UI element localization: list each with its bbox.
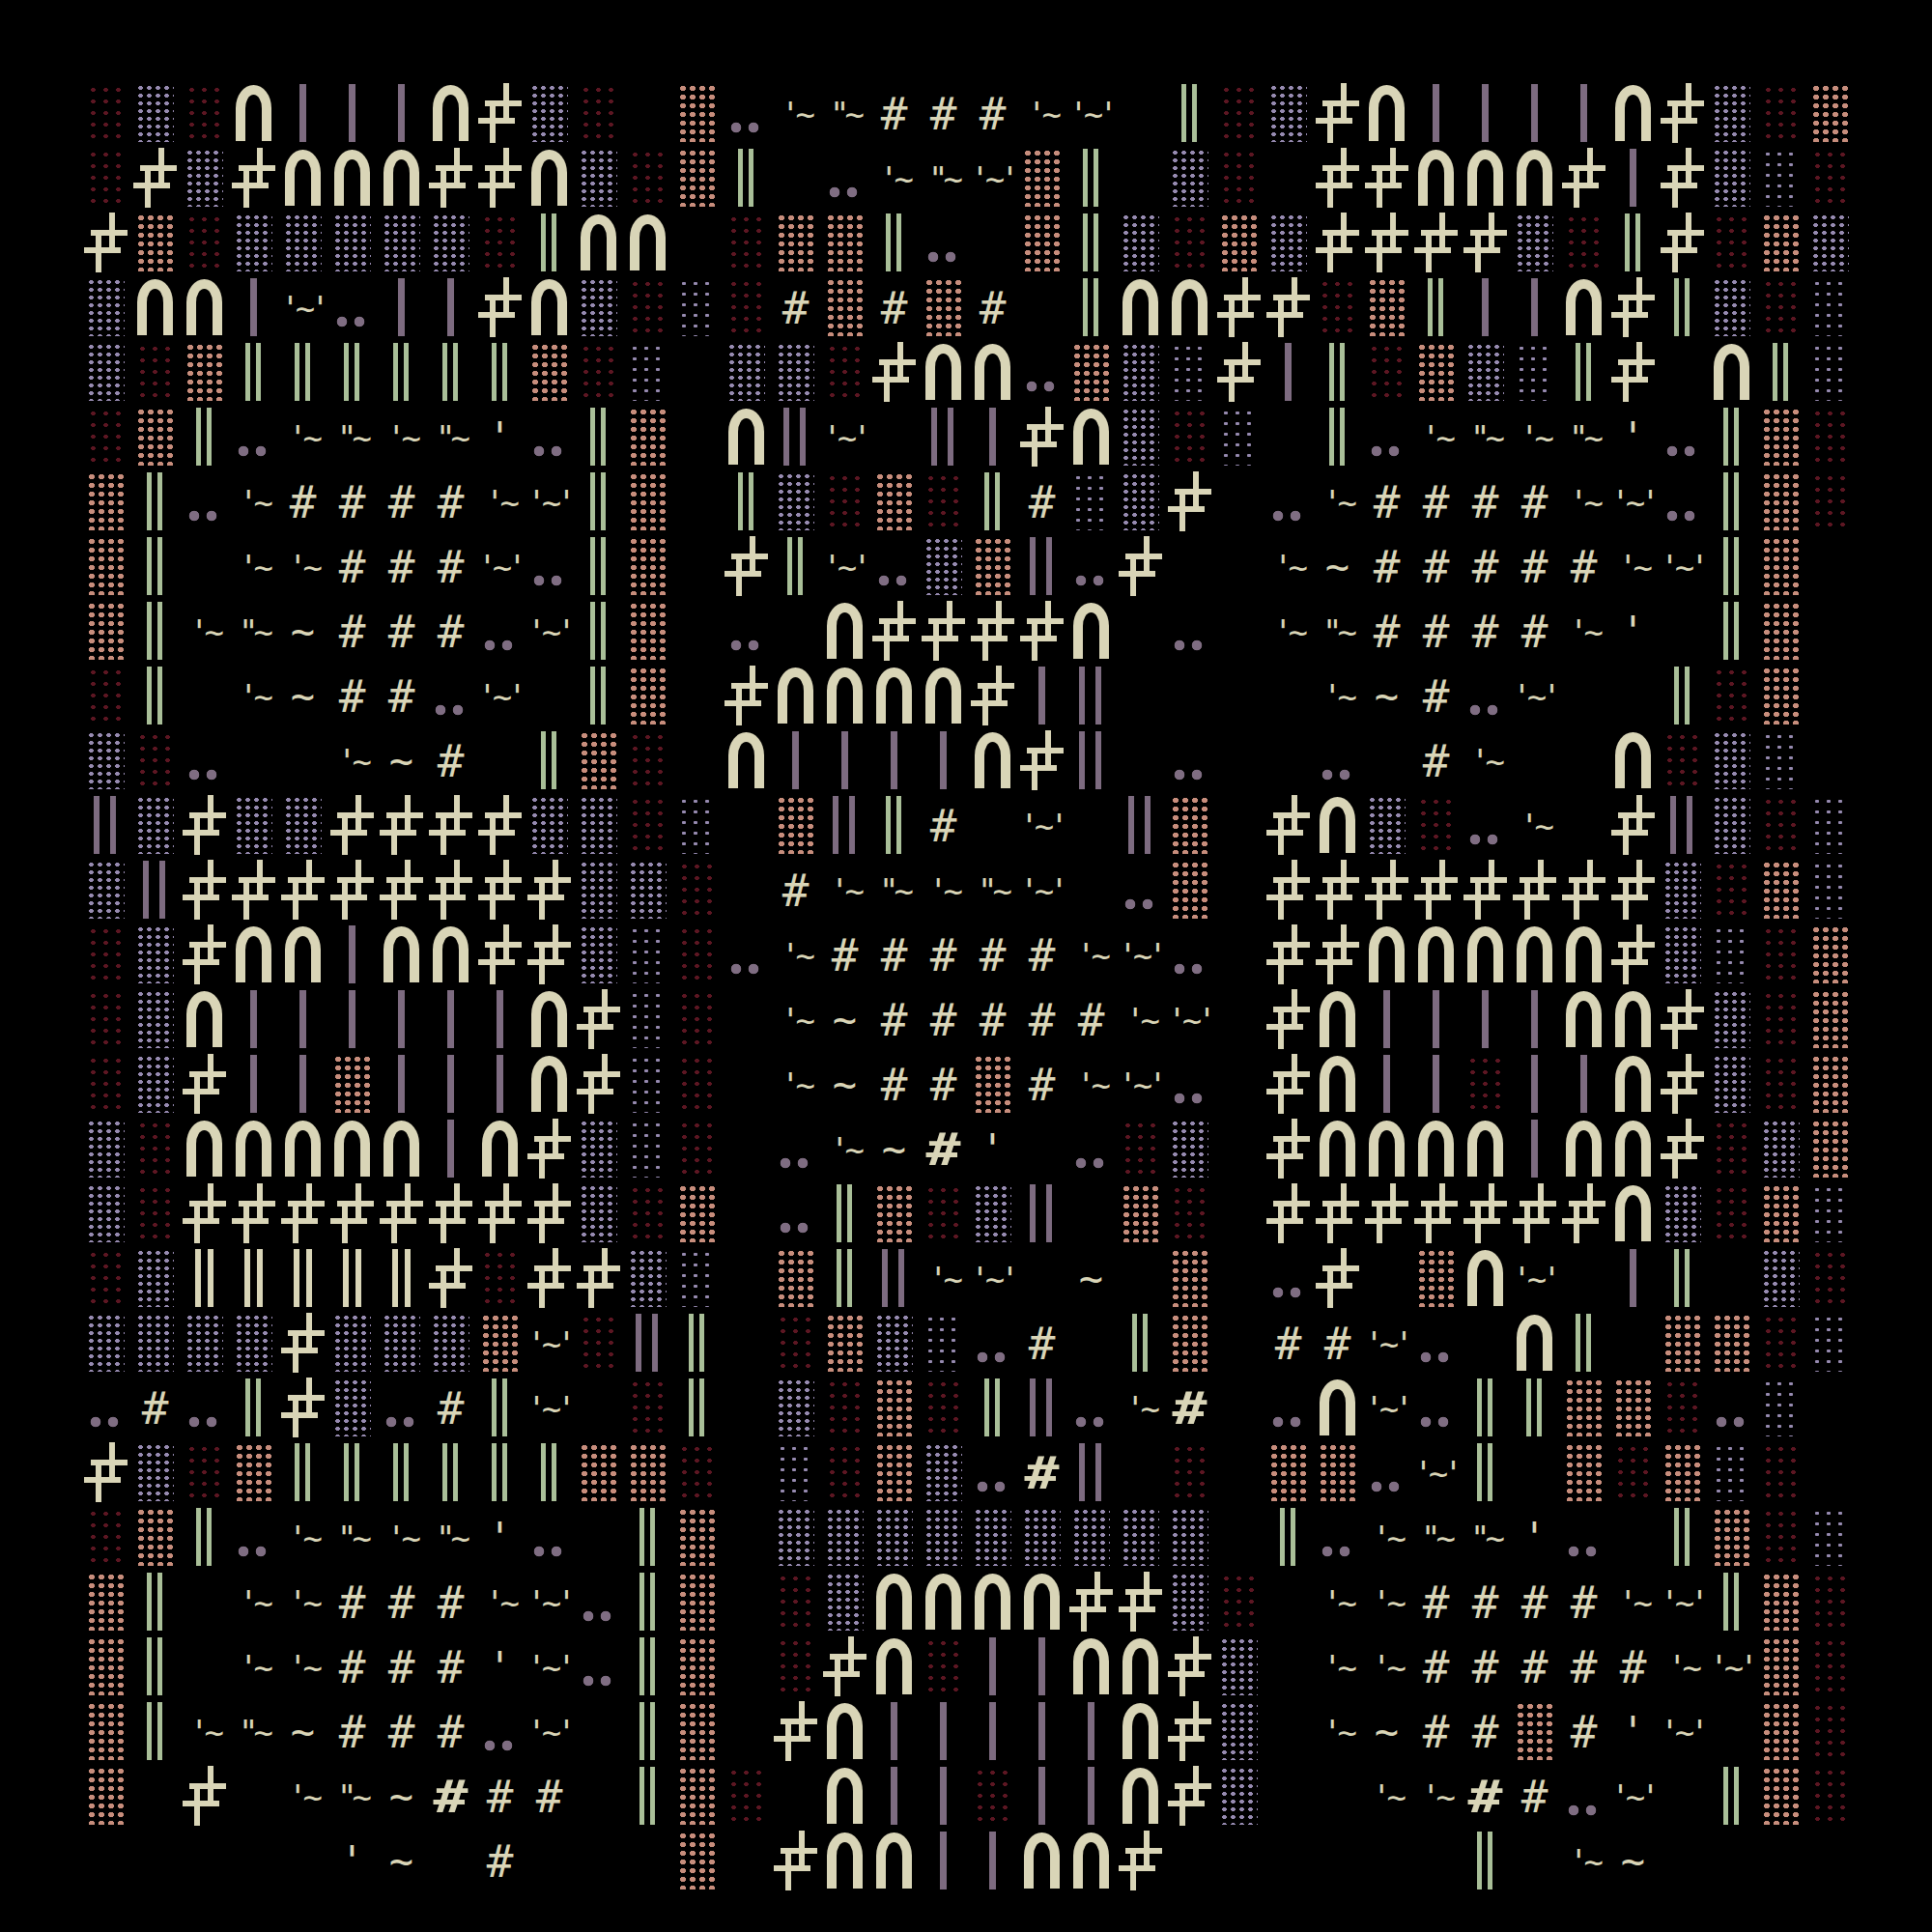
lavender-dot-block xyxy=(771,1505,820,1570)
arch-glyph xyxy=(377,146,426,211)
empty xyxy=(81,1829,130,1893)
lavender-sparse-dot-block xyxy=(1713,1443,1750,1501)
double-cross-glyph xyxy=(1559,858,1608,923)
green-bar-pair xyxy=(130,1570,180,1634)
tick-tilde-text: '~ xyxy=(475,469,525,534)
dot-pair xyxy=(1165,599,1214,664)
lavender-dot-block xyxy=(229,793,278,858)
double-cross-glyph xyxy=(81,211,130,275)
green-bar-pair xyxy=(426,340,475,405)
tick-tilde-text: '~ xyxy=(1510,793,1559,858)
mauve-bar xyxy=(968,1634,1017,1699)
maroon-dot-block xyxy=(1220,1573,1258,1631)
mauve-bar xyxy=(869,1699,919,1764)
green-bar-pair xyxy=(672,1311,722,1376)
salmon-dot-block xyxy=(629,408,667,466)
arch-glyph xyxy=(433,85,469,141)
maroon-dot-block xyxy=(919,1181,968,1246)
double-cross-glyph xyxy=(869,340,919,405)
double-cross-glyph xyxy=(1608,858,1658,923)
double-cross-glyph xyxy=(1264,793,1313,858)
arch-glyph xyxy=(1411,1117,1461,1181)
empty xyxy=(722,1117,771,1181)
maroon-dot-block xyxy=(924,1184,962,1242)
maroon-dot-block xyxy=(678,925,716,983)
arch-glyph xyxy=(525,987,574,1052)
hash-glyph: # xyxy=(1510,1570,1559,1634)
maroon-dot-block xyxy=(81,146,130,211)
green-bar-pair xyxy=(475,1440,525,1505)
salmon-dot-block xyxy=(1805,923,1855,987)
tick-tilde-tick-text: '~' xyxy=(968,146,1017,211)
tick-tilde-text: '~ xyxy=(869,146,919,211)
arch-glyph xyxy=(531,279,567,335)
tick-tilde-text: '~ xyxy=(771,987,820,1052)
green-bar-pair xyxy=(722,469,771,534)
mauve-bar xyxy=(1559,81,1608,146)
salmon-dot-block xyxy=(623,469,672,534)
tilde-text: ~ xyxy=(820,987,869,1052)
maroon-dot-block xyxy=(1614,1443,1652,1501)
arch-glyph xyxy=(482,1121,518,1177)
double-cross-glyph xyxy=(81,1440,130,1505)
double-cross-glyph xyxy=(475,275,525,340)
tick-tilde-text: '~ xyxy=(1264,599,1313,664)
tick-tilde-text: '~ xyxy=(327,728,377,793)
lavender-dot-block xyxy=(81,728,130,793)
empty xyxy=(1264,664,1313,728)
lavender-sparse-dot-block xyxy=(924,1314,962,1372)
hash-glyph: # xyxy=(327,469,377,534)
tick-tilde-tick-text: '~' xyxy=(1116,923,1165,987)
maroon-dot-block xyxy=(1707,664,1756,728)
green-bar-pair xyxy=(1313,405,1362,469)
lavender-sparse-dot-block xyxy=(1165,340,1214,405)
arch-glyph xyxy=(1172,279,1207,335)
hash-glyph: # xyxy=(968,987,1017,1052)
green-bar-pair xyxy=(426,1440,475,1505)
maroon-dot-block xyxy=(1214,81,1264,146)
double-cross-glyph xyxy=(1313,81,1362,146)
lavender-dot-block xyxy=(136,925,174,983)
tick-tilde-text: '~ xyxy=(1313,469,1362,534)
hash-glyph: # xyxy=(869,923,919,987)
lavender-sparse-dot-block xyxy=(1510,340,1559,405)
dot-pair xyxy=(722,923,771,987)
dot-pair xyxy=(869,534,919,599)
salmon-dot-block xyxy=(777,796,814,854)
lavender-dot-block xyxy=(1171,1573,1208,1631)
tick-tilde-tick-text: '~' xyxy=(525,1376,574,1440)
arch-glyph xyxy=(186,279,222,335)
tilde-text: ~ xyxy=(1362,1699,1411,1764)
hash-glyph: # xyxy=(869,275,919,340)
tick-tilde-tick-text: '~' xyxy=(1362,1376,1411,1440)
empty xyxy=(180,1634,229,1699)
lavender-dot-block xyxy=(1165,1505,1214,1570)
double-cross-glyph xyxy=(1165,1699,1214,1764)
mauve-bar-pair xyxy=(1017,1181,1066,1246)
empty xyxy=(1313,1829,1362,1893)
empty xyxy=(1264,405,1313,469)
maroon-dot-block xyxy=(678,990,716,1048)
lavender-sparse-dot-block xyxy=(1805,1311,1855,1376)
lavender-dot-block xyxy=(81,275,130,340)
maroon-dot-block xyxy=(180,1440,229,1505)
double-cross-glyph xyxy=(1313,211,1362,275)
dot-pair xyxy=(771,1181,820,1246)
cream-bar-pair xyxy=(278,1246,327,1311)
hash-glyph: # xyxy=(1066,987,1116,1052)
empty xyxy=(574,1829,623,1893)
arch-glyph xyxy=(876,1574,912,1630)
green-bar-pair xyxy=(1116,1311,1165,1376)
green-bar-pair xyxy=(426,1440,475,1505)
tick-tilde-text: '~ xyxy=(278,534,327,599)
double-cross-glyph xyxy=(180,1764,229,1829)
mauve-bar xyxy=(229,275,278,340)
cream-bar-pair xyxy=(327,1246,377,1311)
tick-text: ' xyxy=(475,405,525,469)
lavender-dot-block xyxy=(130,1311,180,1376)
salmon-dot-block xyxy=(672,1829,722,1893)
salmon-dot-block xyxy=(1658,1311,1707,1376)
arch-glyph xyxy=(820,599,869,664)
green-bar-pair xyxy=(1658,1246,1707,1311)
salmon-dot-block xyxy=(1756,534,1805,599)
lavender-dot-block xyxy=(278,211,327,275)
salmon-dot-block xyxy=(629,602,667,660)
maroon-dot-block xyxy=(1805,1634,1855,1699)
lavender-sparse-dot-block xyxy=(623,923,672,987)
empty xyxy=(722,1376,771,1440)
tick-tilde-tick-text: '~' xyxy=(1707,1634,1756,1699)
dot-pair xyxy=(180,728,229,793)
tick-tilde-tick-text: '~' xyxy=(525,599,574,664)
tick-text: ' xyxy=(1510,1505,1559,1570)
empty xyxy=(180,1829,229,1893)
double-cross-glyph xyxy=(820,1634,869,1699)
dot-pair xyxy=(1313,1505,1362,1570)
green-bar-pair xyxy=(968,469,1017,534)
tick-tilde-tick-text: '~' xyxy=(1017,858,1066,923)
green-bar-pair xyxy=(377,1440,426,1505)
tilde-text: ~ xyxy=(278,664,327,728)
maroon-dot-block xyxy=(1811,472,1849,530)
green-bar-pair xyxy=(327,340,377,405)
maroon-dot-block xyxy=(1707,1117,1756,1181)
dot-pair xyxy=(1264,1246,1313,1311)
lavender-dot-block xyxy=(1713,149,1750,207)
double-cross-glyph xyxy=(1658,211,1707,275)
arch-glyph xyxy=(1510,1311,1559,1376)
salmon-dot-block xyxy=(1756,664,1805,728)
quote-tilde-text: "~ xyxy=(327,1505,377,1570)
empty xyxy=(1707,1246,1756,1311)
hash-glyph: # xyxy=(377,599,426,664)
lavender-dot-block xyxy=(826,1508,864,1566)
double-cross-glyph xyxy=(1658,81,1707,146)
salmon-dot-block xyxy=(1756,469,1805,534)
quote-tilde-text: "~ xyxy=(229,1699,278,1764)
mauve-bar xyxy=(1461,81,1510,146)
maroon-dot-block xyxy=(180,211,229,275)
maroon-dot-block xyxy=(727,278,765,336)
empty xyxy=(1855,1181,1904,1246)
lavender-dot-block xyxy=(924,1443,962,1501)
salmon-dot-block xyxy=(1017,146,1066,211)
salmon-dot-block xyxy=(678,1702,716,1760)
tick-tilde-text: '~ xyxy=(919,858,968,923)
double-cross-glyph xyxy=(180,1181,229,1246)
double-cross-glyph xyxy=(377,858,426,923)
lavender-dot-block xyxy=(771,1376,820,1440)
dot-pair xyxy=(1461,793,1510,858)
empty xyxy=(229,1764,278,1829)
glyph-grid: '~"~###'~'~''~"~'~''~'###'~"~'~"~''~''~"… xyxy=(81,81,1904,1893)
green-bar-pair xyxy=(1658,664,1707,728)
salmon-dot-block xyxy=(968,534,1017,599)
double-cross-glyph xyxy=(1313,858,1362,923)
green-bar-pair xyxy=(1707,1764,1756,1829)
tick-tilde-text: '~ xyxy=(1264,599,1313,664)
hash-glyph: # xyxy=(327,1570,377,1634)
empty xyxy=(1165,1829,1214,1893)
dot-pair xyxy=(1313,728,1362,793)
double-cross-glyph xyxy=(426,1246,475,1311)
tick-tilde-text: '~ xyxy=(820,1117,869,1181)
hash-glyph: # xyxy=(1411,1570,1461,1634)
double-cross-glyph xyxy=(1313,1181,1362,1246)
hash-glyph: # xyxy=(1559,1699,1608,1764)
green-bar-pair xyxy=(1608,211,1658,275)
lavender-dot-block xyxy=(1762,1120,1800,1178)
mauve-bar-pair xyxy=(1017,1376,1066,1440)
arch-glyph xyxy=(925,1574,961,1630)
arch-glyph xyxy=(1116,1764,1165,1829)
arch-glyph xyxy=(1073,1833,1109,1889)
maroon-dot-block xyxy=(919,1376,968,1440)
tick-text: ' xyxy=(968,1117,1017,1181)
double-cross-glyph xyxy=(229,1181,278,1246)
lavender-sparse-dot-block xyxy=(1811,1508,1849,1566)
tick-tilde-text: '~ xyxy=(229,664,278,728)
salmon-dot-block xyxy=(87,1767,125,1825)
green-bar-pair xyxy=(574,599,623,664)
dot-pair xyxy=(574,1570,623,1634)
double-cross-glyph xyxy=(1264,275,1313,340)
hash-glyph: # xyxy=(1264,1311,1313,1376)
salmon-dot-block xyxy=(1411,1246,1461,1311)
salmon-dot-block xyxy=(130,1505,180,1570)
maroon-dot-block xyxy=(81,405,130,469)
salmon-dot-block xyxy=(672,1764,722,1829)
arch-glyph xyxy=(820,664,869,728)
salmon-dot-block xyxy=(1762,1767,1800,1825)
tick-tilde-tick-text: '~' xyxy=(475,664,525,728)
arch-glyph xyxy=(1615,1185,1651,1241)
double-cross-glyph xyxy=(1116,1829,1165,1893)
lavender-sparse-dot-block xyxy=(1805,1181,1855,1246)
lavender-dot-block xyxy=(87,861,125,919)
mauve-bar xyxy=(919,1699,968,1764)
lavender-dot-block xyxy=(1017,1505,1066,1570)
lavender-sparse-dot-block xyxy=(1805,1505,1855,1570)
tick-tilde-tick-text: '~' xyxy=(1510,1246,1559,1311)
green-bar-pair xyxy=(1707,1764,1756,1829)
double-cross-glyph xyxy=(1658,987,1707,1052)
dot-pair xyxy=(180,1376,229,1440)
empty xyxy=(1066,858,1116,923)
hash-glyph: # xyxy=(426,1699,475,1764)
maroon-dot-block xyxy=(81,1246,130,1311)
lavender-dot-block xyxy=(777,1508,814,1566)
lavender-dot-block xyxy=(229,1311,278,1376)
maroon-dot-block xyxy=(1805,1570,1855,1634)
empty xyxy=(1264,1634,1313,1699)
arch-glyph xyxy=(975,1574,1010,1630)
green-bar-pair xyxy=(229,1376,278,1440)
lavender-dot-block xyxy=(1707,728,1756,793)
mauve-bar xyxy=(1066,1764,1116,1829)
hash-glyph: # xyxy=(475,1764,525,1829)
double-cross-glyph xyxy=(327,1181,377,1246)
dot-pair xyxy=(722,599,771,664)
green-bar-pair xyxy=(1658,1505,1707,1570)
maroon-dot-block xyxy=(1762,796,1800,854)
maroon-dot-block xyxy=(1220,149,1258,207)
lavender-dot-block xyxy=(1663,1184,1701,1242)
tick-tilde-text: '~ xyxy=(1411,405,1461,469)
lavender-sparse-dot-block xyxy=(1811,1184,1849,1242)
salmon-dot-block xyxy=(678,1767,716,1825)
dot-pair xyxy=(968,1311,1017,1376)
double-cross-glyph xyxy=(475,81,525,146)
tick-tilde-text: '~ xyxy=(327,728,377,793)
dot-pair xyxy=(1066,534,1116,599)
mauve-bar xyxy=(475,987,525,1052)
double-cross-glyph xyxy=(525,1246,574,1311)
dot-pair xyxy=(919,211,968,275)
green-bar-pair xyxy=(130,534,180,599)
salmon-dot-block xyxy=(1165,793,1214,858)
hash-glyph: # xyxy=(426,1376,475,1440)
green-bar-pair xyxy=(525,211,574,275)
double-cross-glyph xyxy=(1214,340,1264,405)
dot-pair xyxy=(1116,858,1165,923)
mauve-bar xyxy=(968,1829,1017,1893)
maroon-dot-block xyxy=(1713,1120,1750,1178)
dot-pair xyxy=(525,405,574,469)
empty xyxy=(1855,923,1904,987)
dot-pair xyxy=(1658,405,1707,469)
maroon-dot-block xyxy=(1756,1505,1805,1570)
mauve-bar xyxy=(919,1829,968,1893)
hash-glyph: # xyxy=(327,1570,377,1634)
double-cross-glyph xyxy=(1264,987,1313,1052)
mauve-bar xyxy=(1510,275,1559,340)
lavender-dot-block xyxy=(1122,1508,1159,1566)
empty xyxy=(672,728,722,793)
lavender-dot-block xyxy=(1713,278,1750,336)
salmon-dot-block xyxy=(185,343,223,401)
empty xyxy=(1855,146,1904,211)
quote-tilde-text: "~ xyxy=(968,858,1017,923)
tick-tilde-tick-text: '~' xyxy=(1658,1699,1707,1764)
hash-glyph: # xyxy=(1559,534,1608,599)
double-cross-glyph xyxy=(1608,858,1658,923)
maroon-dot-block xyxy=(1165,211,1214,275)
double-cross-glyph xyxy=(1264,923,1313,987)
mauve-bar xyxy=(1411,987,1461,1052)
mauve-bar xyxy=(1510,1052,1559,1117)
maroon-dot-block xyxy=(81,923,130,987)
double-cross-glyph xyxy=(525,1117,574,1181)
green-bar-pair xyxy=(968,469,1017,534)
mauve-bar xyxy=(1017,664,1066,728)
lavender-dot-block xyxy=(968,1181,1017,1246)
double-cross-glyph xyxy=(574,1246,623,1311)
double-cross-glyph xyxy=(968,599,1017,664)
salmon-dot-block xyxy=(1319,1443,1356,1501)
lavender-dot-block xyxy=(87,1184,125,1242)
mauve-bar-pair xyxy=(130,858,180,923)
green-bar-pair xyxy=(180,405,229,469)
green-bar-pair xyxy=(1707,469,1756,534)
hash-glyph: # xyxy=(1411,664,1461,728)
maroon-dot-block xyxy=(87,1508,125,1566)
salmon-dot-block xyxy=(672,81,722,146)
salmon-dot-block xyxy=(574,1440,623,1505)
arch-glyph xyxy=(1608,81,1658,146)
dot-pair xyxy=(869,534,919,599)
lavender-sparse-dot-block xyxy=(623,1117,672,1181)
salmon-dot-block xyxy=(1023,149,1061,207)
hash-glyph: # xyxy=(1362,469,1411,534)
arch-glyph xyxy=(334,150,370,206)
lavender-sparse-dot-block xyxy=(777,1443,814,1501)
double-cross-glyph xyxy=(1116,1570,1165,1634)
lavender-dot-block xyxy=(81,1181,130,1246)
green-bar-pair xyxy=(1559,340,1608,405)
arch-glyph xyxy=(1066,599,1116,664)
lavender-dot-block xyxy=(974,1184,1011,1242)
salmon-dot-block xyxy=(87,602,125,660)
empty xyxy=(1214,1376,1264,1440)
quote-tilde-text: "~ xyxy=(1411,1505,1461,1570)
hash-glyph: # xyxy=(327,1634,377,1699)
lavender-dot-block xyxy=(81,340,130,405)
dot-pair xyxy=(574,1570,623,1634)
hash-glyph: # xyxy=(278,469,327,534)
maroon-dot-block xyxy=(623,1181,672,1246)
green-bar-pair xyxy=(820,1246,869,1311)
lavender-sparse-dot-block xyxy=(1756,1376,1805,1440)
mauve-bar-pair xyxy=(1017,534,1066,599)
tilde-text: ~ xyxy=(377,728,426,793)
arch-glyph xyxy=(1608,728,1658,793)
tick-tilde-tick-text: '~' xyxy=(968,146,1017,211)
maroon-dot-block xyxy=(1658,1376,1707,1440)
double-cross-glyph xyxy=(1362,146,1411,211)
tick-tilde-text: '~ xyxy=(180,599,229,664)
maroon-dot-block xyxy=(672,923,722,987)
salmon-dot-block xyxy=(1165,1311,1214,1376)
tick-tilde-text: '~ xyxy=(229,469,278,534)
tick-tilde-text: '~ xyxy=(1608,534,1658,599)
lavender-sparse-dot-block xyxy=(678,796,716,854)
hash-glyph: # xyxy=(771,275,820,340)
